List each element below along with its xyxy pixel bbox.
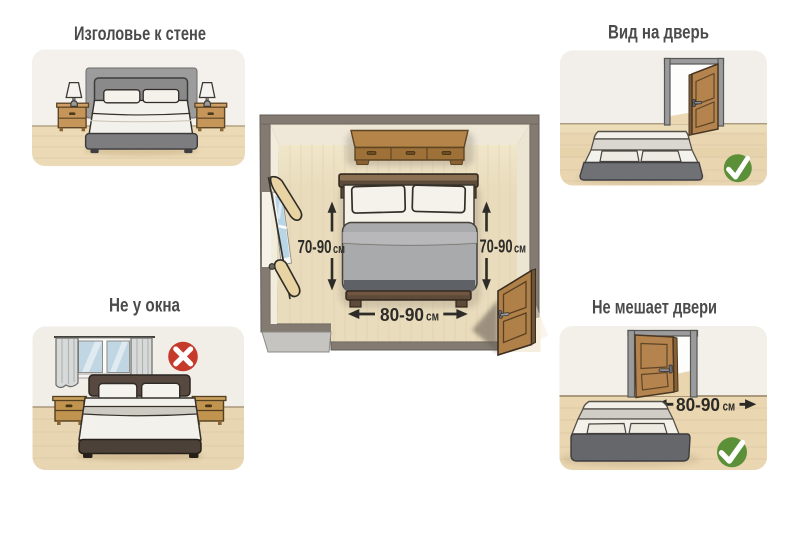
svg-text:см: см [426,309,439,324]
svg-text:см: см [723,399,736,414]
svg-text:80-90: 80-90 [676,394,720,415]
svg-text:70-90: 70-90 [480,237,513,257]
svg-text:Вид на дверь: Вид на дверь [608,23,709,44]
svg-text:70-90: 70-90 [298,237,332,257]
svg-text:Не мешает двери: Не мешает двери [592,298,717,319]
svg-text:Изголовье к стене: Изголовье к стене [74,24,206,45]
svg-text:см: см [333,242,345,256]
svg-text:80-90: 80-90 [380,304,424,325]
svg-text:см: см [514,242,526,256]
svg-text:Не у окна: Не у окна [109,296,180,317]
